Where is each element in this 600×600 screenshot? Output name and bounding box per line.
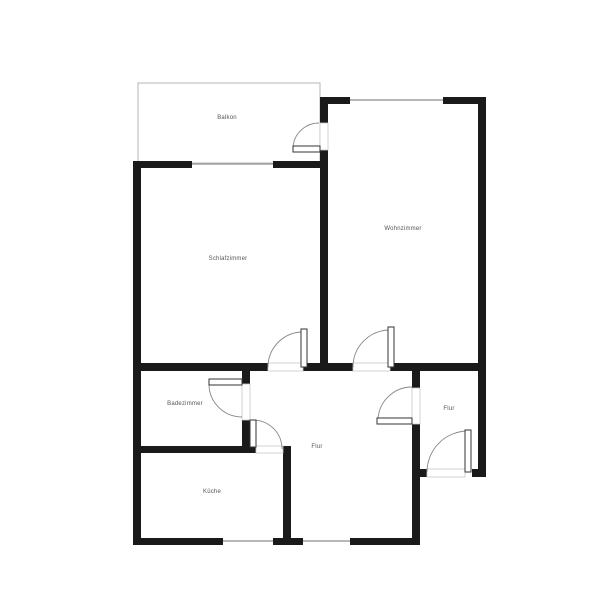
wall	[320, 150, 328, 371]
wall	[242, 363, 250, 384]
door-opening	[320, 123, 328, 150]
room-label-flur: Flur	[311, 444, 322, 450]
flur-door-arc	[378, 387, 412, 421]
wall	[133, 161, 141, 545]
wall	[133, 446, 256, 453]
entrance-door-leaf	[465, 430, 471, 472]
wall	[283, 446, 291, 545]
room-label-schlafzimmer: Schlafzimmer	[209, 256, 248, 262]
wall	[303, 363, 353, 371]
room-label-kueche: Küche	[203, 489, 221, 495]
floor-plan-drawing	[0, 0, 600, 600]
kueche-door-leaf	[250, 420, 256, 447]
flur-door-leaf	[377, 418, 412, 424]
kueche-door-arc	[253, 420, 282, 449]
wall	[478, 97, 486, 477]
wohnzimmer-door-leaf	[388, 327, 394, 367]
door-opening	[353, 363, 390, 371]
balcony-door-arc	[293, 123, 319, 149]
badezimmer-door-leaf	[209, 379, 242, 385]
wall	[133, 538, 223, 545]
door-opening	[427, 469, 465, 477]
door-opening	[412, 388, 420, 424]
wall	[412, 424, 420, 545]
badezimmer-door-arc	[209, 384, 242, 417]
entrance-door-arc	[427, 431, 468, 472]
door-opening	[242, 384, 250, 420]
door-opening	[256, 446, 283, 453]
room-label-balkon: Balkon	[217, 115, 237, 121]
room-label-badezimmer: Badezimmer	[167, 401, 203, 407]
wohnzimmer-door-arc	[353, 330, 390, 367]
wall	[350, 538, 420, 545]
balcony-door-leaf	[293, 146, 320, 152]
wall	[273, 161, 320, 168]
wall	[390, 363, 486, 371]
wall	[133, 161, 192, 168]
wall	[412, 469, 427, 477]
schlafzimmer-door-leaf	[301, 329, 307, 367]
room-label-flur-eingang: Flur	[443, 406, 454, 412]
floor-plan: Balkon Schlafzimmer Wohnzimmer Badezimme…	[0, 0, 600, 600]
wall	[320, 97, 350, 104]
wall	[472, 469, 486, 477]
wall	[273, 538, 303, 545]
room-label-wohnzimmer: Wohnzimmer	[384, 226, 421, 232]
schlafzimmer-door-arc	[268, 332, 303, 367]
wall	[412, 363, 420, 388]
door-opening	[268, 363, 303, 371]
